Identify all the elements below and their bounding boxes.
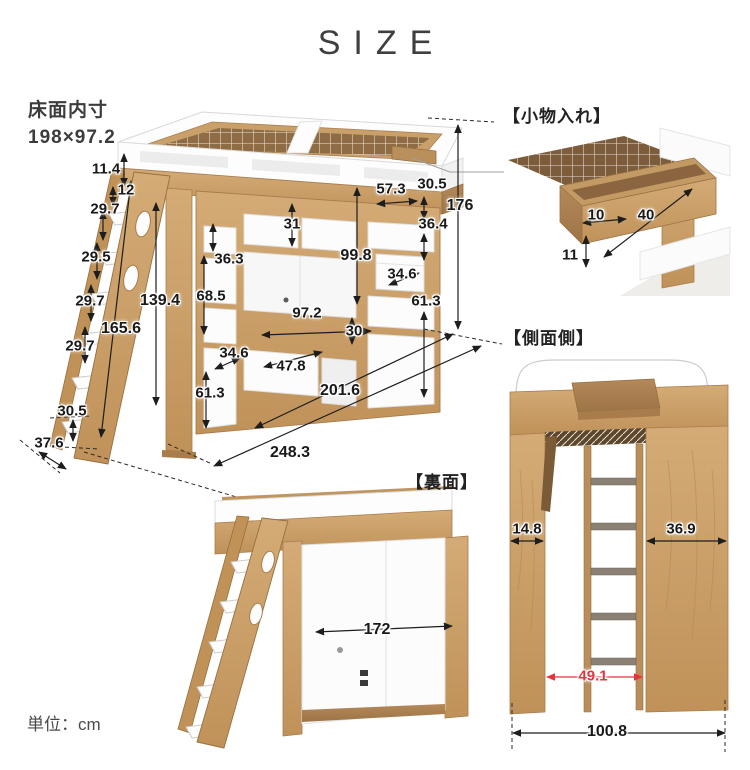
dim-step-gap-2: 29.5 bbox=[81, 249, 110, 266]
bed-surface-size-label: 床面内寸 198×97.2 bbox=[28, 98, 116, 151]
dim-total-depth: 201.6 bbox=[320, 382, 360, 400]
dim-ladder-top-gap: 11.4 bbox=[92, 161, 120, 178]
dim-opening-height: 99.8 bbox=[340, 247, 371, 265]
size-diagram-page: SIZE 床面内寸 198×97.2 【小物入れ】 【側面側】 【裏面】 単位：… bbox=[0, 0, 750, 770]
dim-storage-depth: 11 bbox=[562, 247, 578, 264]
dim-cubby-height: 31 bbox=[284, 216, 301, 233]
dim-right-shelf-top: 30.5 bbox=[417, 176, 446, 193]
bed-surface-size-label-line2: 198×97.2 bbox=[28, 125, 116, 152]
dim-ladder-hook: 12 bbox=[118, 182, 135, 199]
dim-right-drawer-height: 36.4 bbox=[418, 216, 447, 233]
page-title: SIZE bbox=[0, 24, 750, 63]
dim-bottom-step-height: 30.5 bbox=[57, 403, 86, 420]
dim-back-width: 172 bbox=[364, 621, 391, 639]
section-header-small-storage: 【小物入れ】 bbox=[503, 102, 611, 127]
dim-left-shelf-lower: 34.6 bbox=[219, 345, 248, 362]
dim-step-gap-1: 29.7 bbox=[90, 201, 119, 218]
dim-step-gap-3: 29.7 bbox=[75, 293, 104, 310]
section-header-side-view: 【側面側】 bbox=[504, 324, 594, 349]
dim-side-opening-width: 49.1 bbox=[578, 668, 607, 685]
dim-lower-shelf-width: 47.8 bbox=[276, 358, 305, 375]
dim-total-height: 176 bbox=[447, 197, 474, 215]
dim-right-shelf-lower: 34.6 bbox=[387, 266, 416, 283]
section-header-back-view: 【裏面】 bbox=[406, 468, 478, 493]
dim-side-total-width: 100.8 bbox=[587, 723, 627, 741]
dim-storage-inner-width: 10 bbox=[588, 207, 605, 224]
dim-total-width: 248.3 bbox=[270, 444, 310, 462]
dim-right-shelf-width: 57.3 bbox=[376, 181, 405, 198]
dim-storage-length: 40 bbox=[638, 207, 655, 224]
dim-ladder-foot-depth: 37.6 bbox=[34, 435, 63, 452]
back-view-drawing bbox=[178, 486, 468, 748]
dim-left-shelf-top: 36.3 bbox=[214, 251, 243, 268]
dim-under-bed-height: 139.4 bbox=[140, 292, 180, 310]
dim-left-shelf-mid: 68.5 bbox=[196, 288, 225, 305]
dim-lower-height: 30 bbox=[346, 323, 363, 340]
dim-right-shelf-bottom: 61.3 bbox=[411, 293, 440, 310]
dim-side-left-panel: 14.8 bbox=[512, 521, 541, 538]
dim-left-shelf-bottom: 61.3 bbox=[195, 385, 224, 402]
komono-ire-drawing bbox=[508, 128, 730, 296]
unit-label: 単位：cm bbox=[27, 710, 101, 735]
dim-side-right-panel: 36.9 bbox=[666, 521, 695, 538]
dim-opening-width: 97.2 bbox=[292, 305, 321, 322]
bed-surface-size-label-line1: 床面内寸 bbox=[28, 98, 116, 125]
dim-ladder-length: 165.6 bbox=[101, 320, 141, 338]
dim-step-gap-4: 29.7 bbox=[65, 338, 94, 355]
